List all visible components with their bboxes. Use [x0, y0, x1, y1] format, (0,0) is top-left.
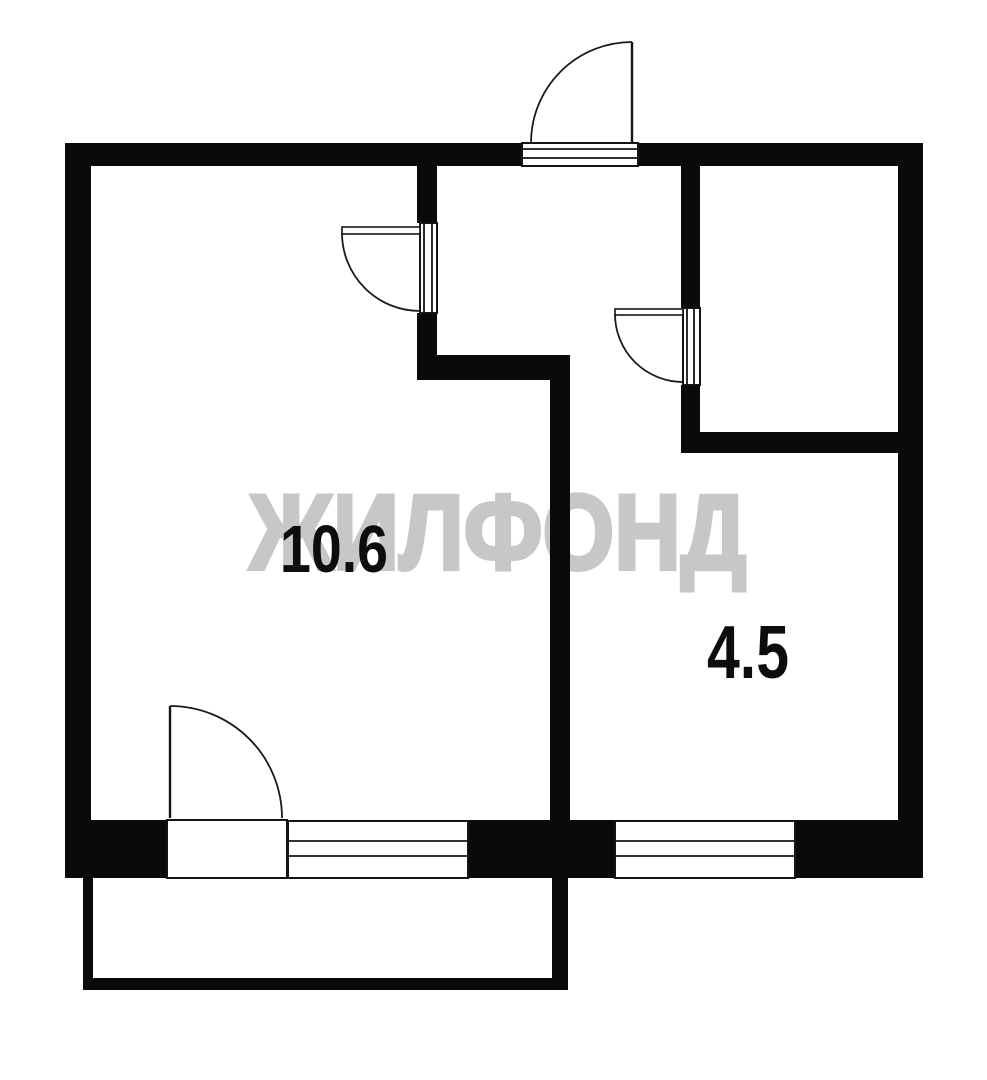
- storage-room-door: [615, 308, 700, 385]
- door-frame: [683, 308, 700, 385]
- wall-right: [898, 143, 923, 878]
- floor-plan-page: ЖИЛФОНД: [0, 0, 987, 1080]
- area-label-right-room: 4.5: [707, 610, 789, 694]
- balcony-door: [167, 706, 287, 878]
- door-swing-arc: [615, 314, 683, 382]
- door-frame: [420, 223, 437, 313]
- entrance-door: [522, 42, 638, 166]
- door-threshold: [522, 143, 638, 166]
- balcony-wall-right: [552, 878, 568, 990]
- floor-plan-svg: ЖИЛФОНД: [0, 0, 987, 1080]
- left-room-door: [342, 223, 437, 313]
- wall-bottom-right-segment: [795, 820, 923, 878]
- door-leaf: [342, 227, 420, 234]
- window-frame: [615, 821, 795, 878]
- door-swing-arc: [531, 42, 632, 143]
- wall-divider-jog-horizontal: [417, 355, 570, 380]
- balcony-wall-left: [83, 876, 93, 990]
- wall-top-right-segment: [638, 143, 923, 166]
- door-swing-arc: [342, 233, 420, 311]
- balcony-wall-bottom: [83, 978, 568, 990]
- door-leaf: [615, 309, 683, 315]
- wall-bottom-middle-segment: [468, 820, 615, 878]
- door-frame: [167, 820, 287, 878]
- wall-left: [65, 143, 91, 878]
- wall-storage-left-upper: [681, 166, 700, 308]
- wall-top-left-segment: [65, 143, 522, 166]
- window-left-room: [288, 821, 468, 878]
- wall-storage-bottom: [681, 432, 898, 453]
- window-right-room: [615, 821, 795, 878]
- window-frame: [288, 821, 468, 878]
- wall-divider-vertical: [550, 377, 570, 820]
- wall-bottom-left-segment: [65, 820, 167, 878]
- balcony-walls: [83, 876, 568, 990]
- wall-room-divider-upper: [417, 166, 437, 223]
- door-swing-arc: [170, 706, 282, 818]
- area-label-left-room: 10.6: [280, 512, 388, 587]
